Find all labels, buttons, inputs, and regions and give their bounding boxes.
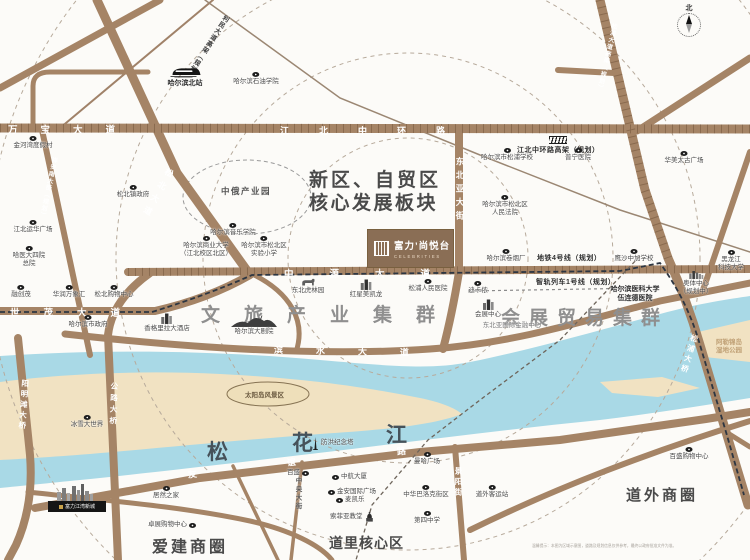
city-skyline-icon xyxy=(54,484,100,501)
poi-label: 哈尔滨市松浦学校 xyxy=(481,154,533,162)
wanbao-ave: 万宝大道 xyxy=(8,122,138,136)
poi-label: 防洪纪念塔 xyxy=(321,439,354,447)
poi-label: 鹰沙中加学校 xyxy=(615,255,654,263)
oval-icon xyxy=(686,447,693,452)
oval-icon xyxy=(261,236,268,241)
map-canvas: 新区、自贸区核心发展板块文旅产业集群会展贸易集群爱建商圈道里核心区道外商圈中俄产… xyxy=(0,0,750,560)
binshui-ave: 滨水大道 xyxy=(274,343,442,359)
poi-label: 东北虎林园 xyxy=(292,287,325,295)
project-logo-name: 富力’尚悦台 xyxy=(394,238,450,252)
oval-icon xyxy=(111,285,118,290)
red-star-macalline: 红星美凯龙 xyxy=(350,279,383,299)
tower-icon xyxy=(312,437,319,450)
songpu-peoples-hospital: 松浦人民医院 xyxy=(409,279,448,293)
poi-label: 松北购物中心 xyxy=(95,291,134,299)
project-logo-en: CELEBRITIES xyxy=(394,254,450,259)
map-disclaimer: 温馨提示：本图为区域示意图，道路及规划信息仅供参考，最终以政府批准文件为准。 xyxy=(532,544,676,549)
songhua-2: 花 xyxy=(292,427,313,457)
poi-label: 松浦人民医院 xyxy=(409,285,448,293)
poi-label: 居然之家 xyxy=(153,492,179,500)
jiangbei-yunhua-plaza: 江北运华广场 xyxy=(14,220,53,234)
poi-label: 道外客运站 xyxy=(476,491,509,499)
oval-icon xyxy=(489,485,496,490)
jiangbei-ring: 江北中环路 xyxy=(280,124,475,137)
compass-needle-north xyxy=(686,15,692,24)
parkson: 百盛 xyxy=(287,469,309,477)
poi-label: 总院 xyxy=(13,260,46,268)
poi-label: 第四中学 xyxy=(414,517,440,525)
gonglu-bridge: 公路大桥 xyxy=(107,382,120,428)
puning-hospital: 普宁医院 xyxy=(565,148,591,162)
peoples-court: 哈尔滨市松北区人民法院 xyxy=(482,195,528,218)
poi-label: 松北镇政府 xyxy=(117,191,150,199)
grand-theatre: 哈尔滨大剧院 xyxy=(231,314,277,336)
sun-island: 太阳岛风景区 xyxy=(245,389,284,399)
fuli-jiangwan-bar: 富力江湾新城 xyxy=(48,501,106,512)
headline-line2: 核心发展板块 xyxy=(309,188,438,215)
zhong-e-park: 中俄产业园 xyxy=(221,185,271,197)
poi-label: 迪卡侬 xyxy=(468,287,488,295)
no4-middle-school: 第四中学 xyxy=(414,511,440,525)
petroleum-institute: 哈尔滨石油学院 xyxy=(233,72,279,86)
oval-icon xyxy=(230,223,237,228)
jinhewan-resort: 金河湾度假村 xyxy=(14,136,53,150)
oval-icon xyxy=(424,511,431,516)
compass-needle-south xyxy=(686,24,692,33)
songhua-1: 松 xyxy=(207,436,228,466)
oval-icon xyxy=(332,475,339,480)
poi-label: 百盛 xyxy=(287,469,300,477)
wu-liande-hospital: 哈尔滨医科大学伍连德医院 xyxy=(611,285,660,303)
poi-label: 中航大厦 xyxy=(341,473,367,481)
city-government: 哈尔滨市政府 xyxy=(69,315,108,329)
viaduct-hatch-icon xyxy=(549,136,567,144)
youyi-rd-1: 友 xyxy=(187,467,198,481)
poi-label: （规划中） xyxy=(680,288,713,296)
oval-icon xyxy=(84,415,91,420)
songbei-shopping-center: 松北购物中心 xyxy=(95,285,134,299)
oval-icon xyxy=(425,279,432,284)
oval-icon xyxy=(575,148,582,153)
oval-icon xyxy=(302,471,309,476)
dongbeiya-st: 东北亚大街 xyxy=(454,157,466,225)
poi-label: 金河湾度假村 xyxy=(14,142,53,150)
oval-icon xyxy=(26,246,33,251)
poi-label: 融创茂 xyxy=(11,291,31,299)
exhibition-center: 会展中心 xyxy=(475,299,501,319)
bld-icon xyxy=(482,299,495,310)
poi-label: 冰雪大世界 xyxy=(71,421,104,429)
poi-label: 华美太古广场 xyxy=(665,157,704,165)
zhuozhan-shopping: 卓展购物中心 xyxy=(148,521,196,529)
tiger-park: 东北虎林园 xyxy=(292,278,325,295)
poi-label: 哈尔滨石油学院 xyxy=(233,78,279,86)
harbin-north-station: 哈尔滨北站 xyxy=(168,66,203,88)
chinese-baroque: 中华巴洛克街区 xyxy=(403,485,449,499)
art-tram-1: 智轨列车1号线（规划） xyxy=(536,277,615,287)
poi-label: 卓展购物中心 xyxy=(148,521,187,529)
oval-icon xyxy=(66,285,73,290)
train-icon xyxy=(169,66,201,78)
songpu-viaduct: 松浦大道高架（规划） xyxy=(594,22,619,92)
flood-memorial-tower: 防洪纪念塔 xyxy=(312,437,354,450)
daoli-core: 道里核心区 xyxy=(329,533,404,553)
oval-icon xyxy=(631,249,638,254)
project-logo: 富力’尚悦台 CELEBRITIES xyxy=(367,229,454,268)
compass: 北 xyxy=(676,5,702,37)
hlj-science-university: 黑龙江科技大学 xyxy=(718,250,744,273)
oval-icon xyxy=(30,220,37,225)
songbei-town-gov: 松北镇政府 xyxy=(117,185,150,199)
oval-icon xyxy=(328,490,335,495)
oval-icon xyxy=(681,151,688,156)
commerce-university: 哈尔滨商业大学（江北校区北区） xyxy=(180,236,232,259)
sophia-cathedral: 索菲亚教堂 xyxy=(330,512,374,522)
poi-label: 哈尔滨北站 xyxy=(168,79,203,88)
compass-north-label: 北 xyxy=(686,5,693,12)
bld-icon xyxy=(161,313,174,324)
poi-label: 实验小学 xyxy=(241,250,287,258)
manha-plaza: 曼哈广场 xyxy=(414,452,440,466)
poi-label: 哈尔滨卷烟厂 xyxy=(487,255,526,263)
poi-label: 麦凯乐 xyxy=(345,496,365,504)
daowai-bus-station: 道外客运站 xyxy=(476,485,509,499)
shangri-la-hotel: 香格里拉大酒店 xyxy=(144,313,190,333)
oval-icon xyxy=(130,185,137,190)
oval-icon xyxy=(728,250,735,255)
daowai-circle: 道外商圈 xyxy=(626,484,698,505)
songpu-school: 哈尔滨市松浦学校 xyxy=(481,148,533,162)
label-layer: 新区、自贸区核心发展板块文旅产业集群会展贸易集群爱建商圈道里核心区道外商圈中俄产… xyxy=(0,0,750,560)
nea-financial-center: 东北亚国际金融中心 xyxy=(483,322,542,330)
rongchuang-mall: 融创茂 xyxy=(11,285,31,299)
opera-icon xyxy=(231,314,277,327)
olympic-center: 奥体中心（规划中） xyxy=(680,270,713,297)
tiger-icon xyxy=(301,278,316,286)
poi-label: 人民法院 xyxy=(482,209,528,217)
oval-icon xyxy=(336,498,343,503)
poi-label: 曼哈广场 xyxy=(414,458,440,466)
poi-label: 香格里拉大酒店 xyxy=(144,325,190,333)
ice-snow-world: 冰雪大世界 xyxy=(71,415,104,429)
oval-icon xyxy=(203,236,210,241)
poi-label: 百盛购物中心 xyxy=(670,453,709,461)
poi-label: 哈尔滨市政府 xyxy=(69,321,108,329)
poi-label: 会展中心 xyxy=(475,311,501,319)
poi-label: 哈尔滨医科大学 xyxy=(611,285,660,294)
oval-icon xyxy=(30,136,37,141)
poi-label: （江北校区北区） xyxy=(180,250,232,258)
poi-label: 科技大学 xyxy=(718,264,744,272)
oval-icon xyxy=(504,148,511,153)
huarun-wanxianghui: 华润万象汇 xyxy=(53,285,86,299)
yingsha-school: 鹰沙中加学校 xyxy=(615,249,654,263)
juran-home: 居然之家 xyxy=(153,486,179,500)
oval-icon xyxy=(424,452,431,457)
compass-dial-icon xyxy=(677,13,701,37)
project-logo-mark-icon xyxy=(374,241,389,256)
oval-icon xyxy=(85,315,92,320)
huamei-taikoo-plaza: 华美太古广场 xyxy=(665,151,704,165)
songpu-bridge: 松浦大桥 xyxy=(678,333,701,376)
oval-icon xyxy=(253,72,260,77)
skyline-icon xyxy=(689,270,704,279)
fuli-jiangwan-logo: 富力江湾新城 xyxy=(48,484,106,512)
oval-icon xyxy=(163,486,170,491)
avic-building: 中航大厦 xyxy=(332,473,367,481)
poi-label: 江北运华广场 xyxy=(14,226,53,234)
oval-icon xyxy=(18,285,25,290)
yangmingtan-bridge: 阳明滩大桥 xyxy=(16,379,31,432)
xiangan-st: 祥安南大街（规划） xyxy=(37,156,59,219)
mykal: 麦凯乐 xyxy=(336,496,365,504)
poi-label: 哈尔滨大剧院 xyxy=(235,328,274,336)
alejin-2: 湿地公园 xyxy=(716,344,742,354)
bld-icon xyxy=(360,279,373,290)
aijian-circle: 爱建商圈 xyxy=(152,533,228,557)
church-icon xyxy=(365,512,374,522)
fuli-gold-mark-icon xyxy=(59,505,63,509)
oval-icon xyxy=(189,523,196,528)
cigarette-factory: 哈尔滨卷烟厂 xyxy=(487,249,526,263)
oval-icon xyxy=(423,485,430,490)
poi-label: 东北亚国际金融中心 xyxy=(483,322,542,330)
poi-label: 中华巴洛克街区 xyxy=(403,491,449,499)
oval-icon xyxy=(475,281,482,286)
youyi-rd-3: 路 xyxy=(396,444,407,458)
hayida-4th-hospital: 哈医大四院总院 xyxy=(13,246,46,269)
youyi-rd-2: 谊 xyxy=(286,455,297,469)
poi-label: 红星美凯龙 xyxy=(350,291,383,299)
experimental-school: 哈尔滨市松北区实验小学 xyxy=(241,236,287,259)
metro-4: 地铁4号线（规划） xyxy=(537,253,601,263)
decathlon: 迪卡侬 xyxy=(468,281,488,295)
poi-label: 伍连德医院 xyxy=(611,294,660,303)
poi-label: 索菲亚教堂 xyxy=(330,513,363,521)
parkson-shopping-center: 百盛购物中心 xyxy=(670,447,709,461)
zhongyang-st: 中央大街 xyxy=(292,477,302,511)
poi-label: 普宁医院 xyxy=(565,154,591,162)
oval-icon xyxy=(503,249,510,254)
oval-icon xyxy=(502,195,509,200)
fuli-jiangwan-name: 富力江湾新城 xyxy=(65,503,95,510)
poi-label: 华润万象汇 xyxy=(53,291,86,299)
jingyang-st: 景阳街 xyxy=(453,467,464,499)
